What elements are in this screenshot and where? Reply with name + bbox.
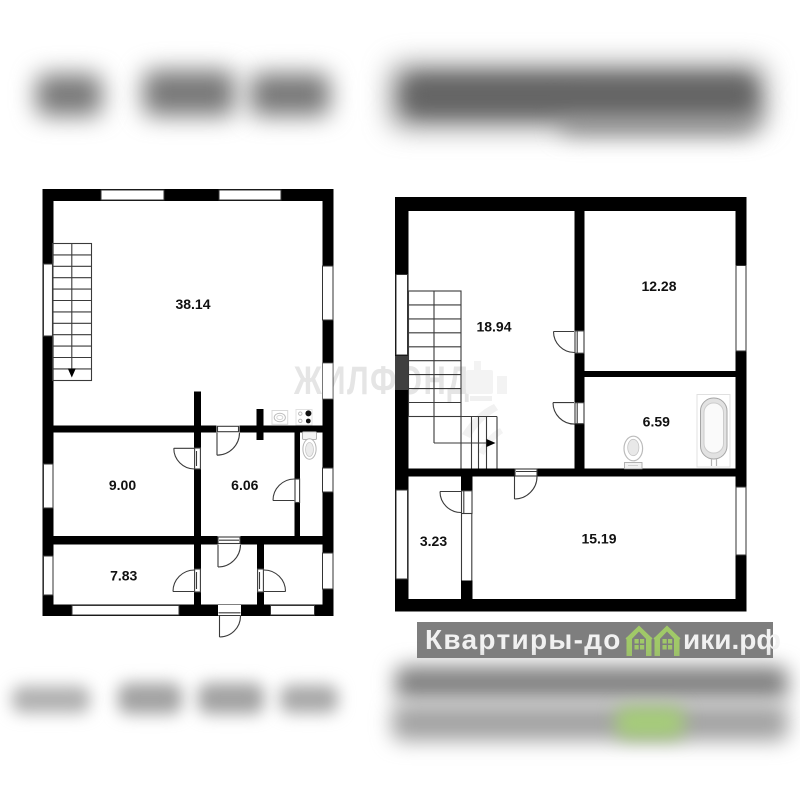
- svg-text:15.19: 15.19: [581, 531, 616, 547]
- svg-text:6.59: 6.59: [643, 414, 670, 430]
- svg-text:ЖИЛФОНД: ЖИЛФОНД: [293, 358, 471, 403]
- svg-text:12.28: 12.28: [641, 278, 676, 294]
- svg-text:9.00: 9.00: [109, 477, 136, 493]
- svg-text:18.94: 18.94: [476, 319, 511, 335]
- svg-text:7.83: 7.83: [110, 568, 137, 584]
- svg-text:3.23: 3.23: [420, 533, 447, 549]
- svg-text:6.06: 6.06: [231, 477, 258, 493]
- svg-text:38.14: 38.14: [175, 296, 210, 312]
